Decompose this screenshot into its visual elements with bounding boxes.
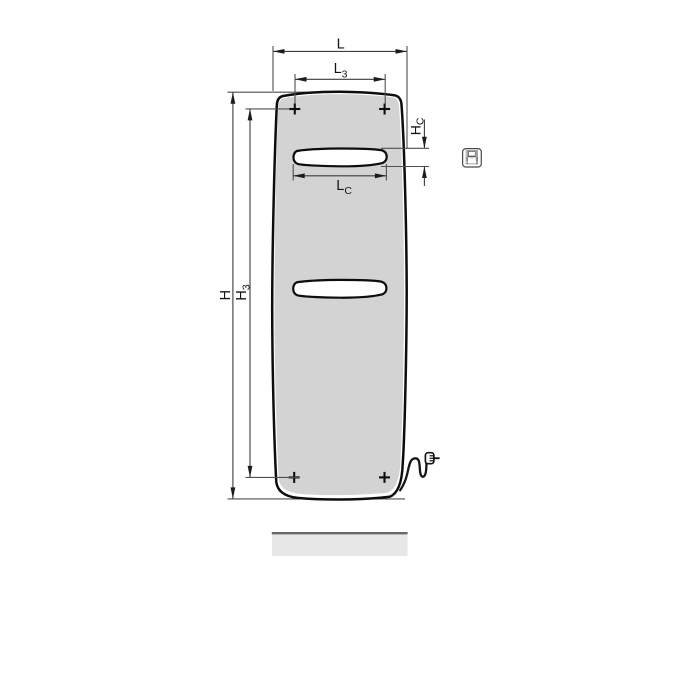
svg-text:L: L (337, 36, 345, 52)
svg-text:H: H (218, 290, 234, 300)
